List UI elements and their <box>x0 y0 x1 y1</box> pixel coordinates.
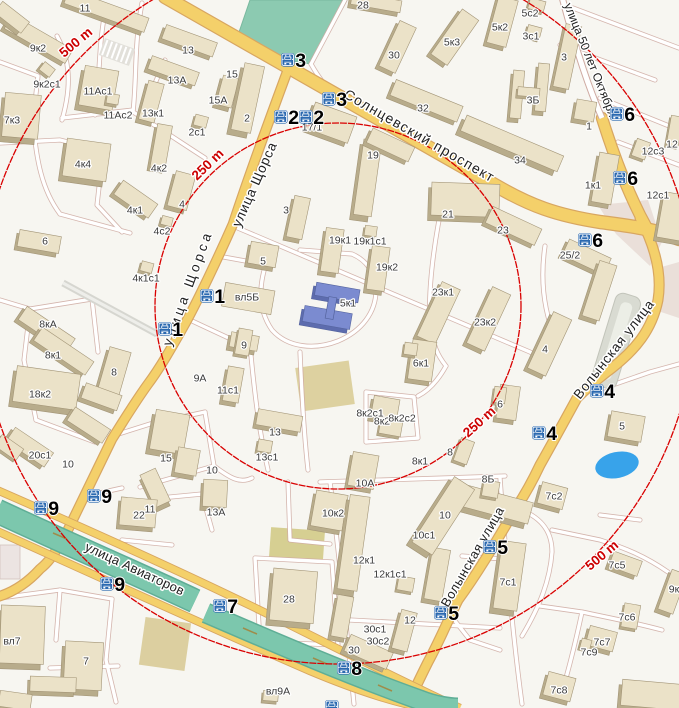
svg-text:1: 1 <box>586 121 592 133</box>
svg-text:4: 4 <box>546 423 557 445</box>
svg-text:19к1: 19к1 <box>329 235 351 247</box>
svg-text:15: 15 <box>226 69 238 81</box>
svg-text:30: 30 <box>388 50 400 62</box>
svg-text:6: 6 <box>627 168 638 190</box>
svg-text:10с1: 10с1 <box>413 530 436 542</box>
svg-text:11: 11 <box>80 3 91 15</box>
svg-text:9: 9 <box>114 574 125 596</box>
svg-text:9: 9 <box>48 498 59 520</box>
svg-text:2: 2 <box>244 113 250 125</box>
svg-text:9к: 9к <box>669 584 679 596</box>
svg-text:7к3: 7к3 <box>4 115 20 127</box>
svg-text:13А: 13А <box>168 75 187 87</box>
svg-text:3: 3 <box>561 52 567 64</box>
svg-text:13А: 13А <box>207 507 226 519</box>
svg-text:4: 4 <box>542 344 548 356</box>
svg-text:1к1: 1к1 <box>585 180 601 192</box>
svg-text:8к1: 8к1 <box>45 350 61 362</box>
svg-text:11с1: 11с1 <box>217 385 239 397</box>
svg-text:18к2: 18к2 <box>29 389 51 401</box>
svg-text:6: 6 <box>624 104 635 126</box>
svg-text:32: 32 <box>417 103 429 115</box>
svg-text:4к4: 4к4 <box>75 159 91 171</box>
svg-text:5к2: 5к2 <box>492 22 508 34</box>
svg-text:4к2: 4к2 <box>151 163 167 175</box>
svg-text:8: 8 <box>111 367 117 379</box>
svg-text:5: 5 <box>448 603 459 625</box>
svg-text:2с1: 2с1 <box>189 127 206 139</box>
svg-text:12к1: 12к1 <box>353 555 375 567</box>
svg-text:5: 5 <box>260 256 266 268</box>
svg-text:10А: 10А <box>356 478 375 490</box>
svg-text:12к1с1: 12к1с1 <box>373 569 406 581</box>
svg-text:7с2: 7с2 <box>546 491 563 503</box>
svg-text:15А: 15А <box>209 95 228 107</box>
svg-text:8: 8 <box>351 658 362 680</box>
svg-text:7с1: 7с1 <box>500 577 517 589</box>
svg-text:8кА: 8кА <box>39 319 56 331</box>
svg-text:23к2: 23к2 <box>474 317 496 329</box>
svg-text:11Ас2: 11Ас2 <box>104 110 133 122</box>
svg-text:9к2с1: 9к2с1 <box>33 79 61 91</box>
svg-text:30с1: 30с1 <box>364 624 387 636</box>
svg-text:19: 19 <box>367 150 379 162</box>
svg-text:7: 7 <box>83 656 89 668</box>
svg-text:3: 3 <box>283 205 289 217</box>
svg-text:7с9: 7с9 <box>581 647 598 659</box>
svg-text:28: 28 <box>357 0 369 12</box>
svg-text:2: 2 <box>313 107 324 129</box>
svg-text:11Ас1: 11Ас1 <box>84 86 113 98</box>
svg-text:21: 21 <box>442 209 454 221</box>
svg-text:3с1: 3с1 <box>523 31 540 43</box>
svg-text:5: 5 <box>619 421 625 433</box>
svg-text:12с1: 12с1 <box>647 190 670 202</box>
svg-text:1: 1 <box>172 319 183 341</box>
svg-text:6: 6 <box>497 399 503 411</box>
svg-text:15: 15 <box>160 453 172 465</box>
svg-text:5к1: 5к1 <box>340 298 356 310</box>
svg-text:вл9А: вл9А <box>266 686 290 698</box>
svg-text:28: 28 <box>283 594 295 606</box>
svg-text:4к1с1: 4к1с1 <box>132 273 160 285</box>
svg-text:7: 7 <box>227 596 238 618</box>
svg-text:8: 8 <box>447 447 453 459</box>
svg-text:25/2: 25/2 <box>560 250 581 262</box>
svg-text:2: 2 <box>288 107 299 129</box>
svg-text:5: 5 <box>497 537 508 559</box>
svg-text:10к2: 10к2 <box>322 508 344 520</box>
svg-text:8Б: 8Б <box>482 474 495 486</box>
svg-text:3Б: 3Б <box>527 95 540 107</box>
svg-text:7с8: 7с8 <box>551 685 568 697</box>
svg-text:3: 3 <box>295 50 306 72</box>
svg-text:11: 11 <box>145 504 156 516</box>
svg-text:6к1: 6к1 <box>413 358 429 370</box>
svg-text:23к1: 23к1 <box>432 287 454 299</box>
svg-text:22: 22 <box>133 510 145 522</box>
svg-text:9к2: 9к2 <box>30 43 46 55</box>
svg-text:7с6: 7с6 <box>619 612 636 624</box>
svg-text:13с1: 13с1 <box>256 452 279 464</box>
svg-text:34: 34 <box>514 155 526 167</box>
svg-text:5с2: 5с2 <box>522 8 539 20</box>
svg-text:19к2: 19к2 <box>376 262 398 274</box>
svg-text:13к1: 13к1 <box>142 108 164 120</box>
svg-text:19к1с1: 19к1с1 <box>353 236 386 248</box>
svg-text:23: 23 <box>497 225 509 237</box>
svg-text:12: 12 <box>404 615 416 627</box>
svg-text:6: 6 <box>42 236 48 248</box>
svg-text:4: 4 <box>179 199 185 211</box>
svg-text:4: 4 <box>604 381 615 403</box>
svg-text:5к3: 5к3 <box>444 37 460 49</box>
svg-text:10: 10 <box>62 459 74 471</box>
svg-text:7с5: 7с5 <box>609 560 626 572</box>
svg-text:9А: 9А <box>194 373 207 385</box>
svg-text:8к1: 8к1 <box>412 456 428 468</box>
svg-text:12с3: 12с3 <box>642 146 665 158</box>
svg-text:4с2: 4с2 <box>154 226 171 238</box>
svg-text:30с2: 30с2 <box>367 636 390 648</box>
svg-text:10: 10 <box>439 510 451 522</box>
svg-text:9: 9 <box>101 486 112 508</box>
svg-text:3: 3 <box>336 89 347 111</box>
svg-text:9: 9 <box>241 340 247 352</box>
svg-text:10: 10 <box>206 465 218 477</box>
svg-text:30: 30 <box>348 645 360 657</box>
svg-text:6: 6 <box>592 230 603 252</box>
svg-text:1: 1 <box>214 286 225 308</box>
svg-text:8к2с2: 8к2с2 <box>388 413 416 425</box>
svg-text:13: 13 <box>182 45 194 57</box>
svg-text:вл7: вл7 <box>3 636 20 648</box>
svg-text:20с1: 20с1 <box>29 450 52 462</box>
svg-text:4к1: 4к1 <box>127 205 143 217</box>
svg-text:12: 12 <box>666 139 678 151</box>
svg-text:13: 13 <box>269 427 281 439</box>
svg-text:вл5Б: вл5Б <box>235 292 259 304</box>
